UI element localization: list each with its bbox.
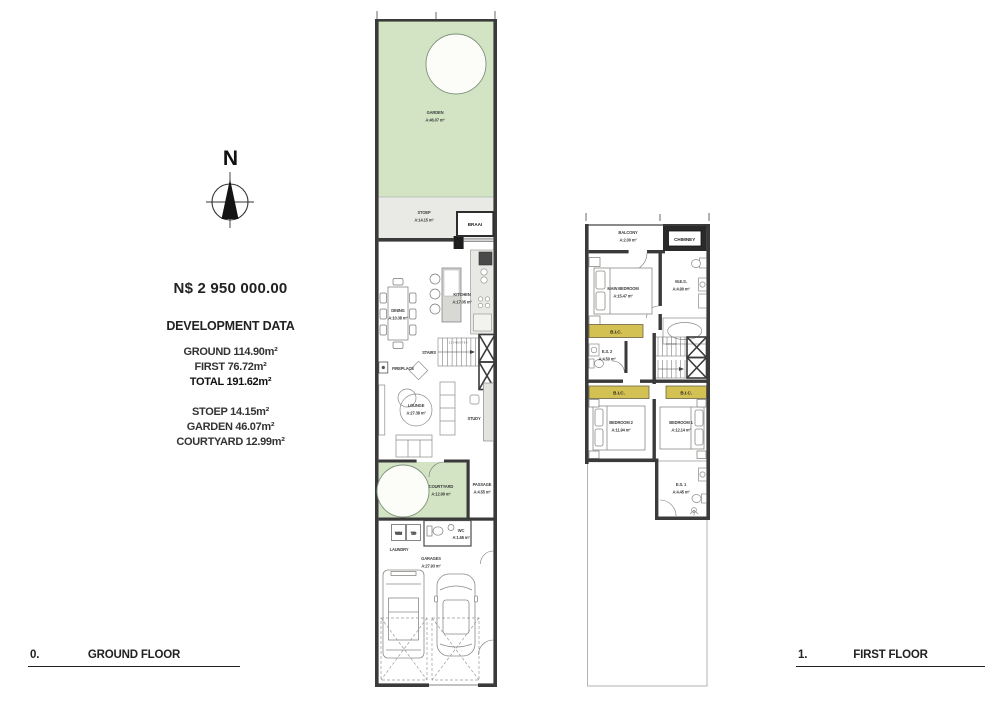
north-arrow: N xyxy=(204,150,256,235)
compass-icon xyxy=(204,168,256,230)
first-floor-title: FIRST FLOOR xyxy=(796,649,985,661)
svg-text:B.I.C.: B.I.C. xyxy=(680,391,692,396)
svg-text:A:27.93 m²: A:27.93 m² xyxy=(421,564,441,569)
area-stoep: STOEP 14.15m² xyxy=(128,405,333,420)
svg-text:A:4.50 m²: A:4.50 m² xyxy=(598,357,616,362)
stairs-label: STAIRS xyxy=(422,350,436,355)
floorplan-sheet: N N$ 2 950 000.00 DEVELOPMENT DATA GROUN… xyxy=(0,0,1000,707)
svg-text:A:12.99 m²: A:12.99 m² xyxy=(431,492,451,497)
lounge-furniture xyxy=(379,361,455,457)
braai-label: BRAAI xyxy=(468,222,483,227)
svg-text:PASSAGE: PASSAGE xyxy=(473,482,492,487)
svg-text:GARAGES: GARAGES xyxy=(421,556,441,561)
chimney-block: CHIMNEY xyxy=(663,226,706,251)
mes-label: M.E.S. A:4.90 m² xyxy=(672,279,690,292)
svg-text:M.E.S.: M.E.S. xyxy=(675,279,686,284)
passage-label: PASSAGE A:4.55 m² xyxy=(473,482,492,495)
garages-label: GARAGES A:27.93 m² xyxy=(421,556,441,569)
stool-icon xyxy=(430,274,440,284)
svg-text:WC: WC xyxy=(458,528,465,533)
study-label: STUDY xyxy=(467,416,481,421)
svg-text:A:4.45 m²: A:4.45 m² xyxy=(672,490,690,495)
svg-text:LOUNGE: LOUNGE xyxy=(408,403,425,408)
fireplace-icon xyxy=(379,362,388,373)
svg-text:COURTYARD: COURTYARD xyxy=(429,484,454,489)
bic-1: B.I.C. xyxy=(589,325,643,338)
first-floor-underline xyxy=(796,666,985,667)
svg-text:A:4.90 m²: A:4.90 m² xyxy=(672,287,690,292)
development-data-title: DEVELOPMENT DATA xyxy=(128,319,333,333)
stair-numbers: 1 2 3 4 5 6 7 8 9 xyxy=(449,341,468,345)
first-floor-plan: CHIMNEY xyxy=(583,210,712,690)
datum-ticks xyxy=(377,11,495,19)
area-total: TOTAL 191.62m² xyxy=(128,375,333,390)
svg-text:A:14.15 m²: A:14.15 m² xyxy=(414,218,434,223)
area-courtyard: COURTYARD 12.99m² xyxy=(128,435,333,450)
development-data-panel: N$ 2 950 000.00 DEVELOPMENT DATA GROUND … xyxy=(128,280,333,450)
stool-icon xyxy=(430,304,440,314)
laundry-label: LAUNDRY xyxy=(390,547,409,552)
area-ground: GROUND 114.90m² xyxy=(128,345,333,360)
door-arcs xyxy=(478,551,493,655)
svg-text:A:12.14 m²: A:12.14 m² xyxy=(671,428,691,433)
svg-text:A:1.65 m²: A:1.65 m² xyxy=(452,535,470,540)
roof-below-outline xyxy=(588,461,708,686)
svg-text:A:17.05 m²: A:17.05 m² xyxy=(452,300,472,305)
stool-icon xyxy=(430,289,440,299)
svg-text:A:27.38 m²: A:27.38 m² xyxy=(406,411,426,416)
dining-table xyxy=(380,279,416,349)
garden-tree-icon xyxy=(426,34,486,94)
area-garden: GARDEN 46.07m² xyxy=(128,420,333,435)
svg-text:E.S. 1: E.S. 1 xyxy=(676,482,687,487)
ground-floor-underline xyxy=(28,666,240,667)
laundry-fixtures: W/M T/D xyxy=(392,525,421,541)
svg-text:BEDROOM 1: BEDROOM 1 xyxy=(669,420,693,425)
chimney-label: CHIMNEY xyxy=(674,237,695,242)
car-right xyxy=(435,574,478,656)
svg-text:A:15.47 m²: A:15.47 m² xyxy=(613,294,633,299)
datum-ticks xyxy=(586,213,709,221)
svg-text:STOEP: STOEP xyxy=(417,210,430,215)
mes-fixtures xyxy=(663,258,707,344)
fireplace-label: FIREPLACE xyxy=(392,366,414,371)
svg-text:E.S. 2: E.S. 2 xyxy=(602,349,613,354)
wc-label: WC A:1.65 m² xyxy=(452,528,470,540)
study-furniture xyxy=(470,383,494,441)
es2-label: E.S. 2 A:4.50 m² xyxy=(598,349,616,362)
braai-box: BRAAI xyxy=(457,212,493,236)
svg-text:BEDROOM 2: BEDROOM 2 xyxy=(609,420,633,425)
price: N$ 2 950 000.00 xyxy=(128,280,333,297)
main-bedroom-bed xyxy=(589,258,652,326)
svg-text:A:4.55 m²: A:4.55 m² xyxy=(473,490,491,495)
svg-text:A:11.94 m²: A:11.94 m² xyxy=(612,428,632,433)
washing-machine-label: W/M xyxy=(395,532,402,536)
svg-text:A:46.07 m²: A:46.07 m² xyxy=(425,118,445,123)
north-label: N xyxy=(204,150,256,168)
sofa xyxy=(396,435,432,457)
ground-floor-plan: BRAAI xyxy=(375,8,497,692)
svg-text:B.I.C.: B.I.C. xyxy=(613,391,625,396)
svg-text:GARDEN: GARDEN xyxy=(427,110,444,115)
tumble-dryer-label: T/D xyxy=(411,532,417,536)
svg-text:DINING: DINING xyxy=(391,308,404,313)
svg-text:A:2.00 m²: A:2.00 m² xyxy=(619,238,637,243)
svg-text:KITCHEN: KITCHEN xyxy=(453,292,470,297)
ground-floor-title: GROUND FLOOR xyxy=(28,649,240,661)
bic-2: B.I.C. xyxy=(589,386,649,399)
lounge-label: LOUNGE A:27.38 m² xyxy=(406,403,426,416)
car-left xyxy=(383,570,424,658)
bedroom-divider-wall xyxy=(653,399,656,462)
svg-text:A:10.38 m²: A:10.38 m² xyxy=(388,316,408,321)
stairs: 1 2 3 4 5 6 7 8 9 xyxy=(438,335,495,390)
wc-room xyxy=(424,521,471,547)
kitchen-counter xyxy=(471,250,494,334)
courtyard-tree-icon xyxy=(377,465,429,517)
svg-text:B.I.C.: B.I.C. xyxy=(610,330,622,335)
stair-landing xyxy=(479,335,495,390)
svg-text:BALCONY: BALCONY xyxy=(618,230,638,235)
door-arc xyxy=(613,361,625,373)
bic-3: B.I.C. xyxy=(666,386,706,399)
stair-numbers: 9 8 7 6 5 xyxy=(666,342,677,346)
area-first: FIRST 76.72m² xyxy=(128,360,333,375)
balcony-label: BALCONY A:2.00 m² xyxy=(618,230,638,243)
svg-text:MAIN BEDROOM: MAIN BEDROOM xyxy=(607,286,639,291)
